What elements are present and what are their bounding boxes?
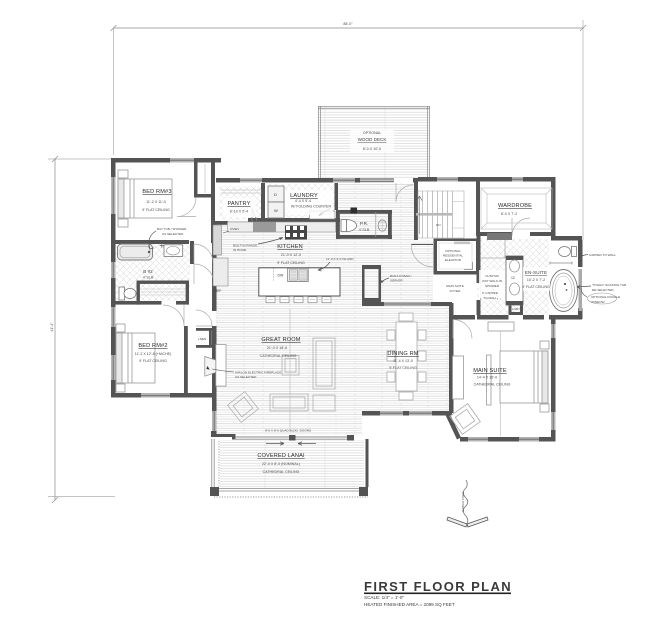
svg-text:WINDOW: WINDOW [591,300,605,304]
svg-text:4' SLB: 4' SLB [143,276,154,280]
svg-text:AS SELECTED: AS SELECTED [162,232,184,236]
svg-text:FIRST FLOOR PLAN: FIRST FLOOR PLAN [364,579,512,594]
svg-text:41'-4": 41'-4" [50,322,54,332]
svg-text:'TO&GO' SOAKING TUB: 'TO&GO' SOAKING TUB [592,283,626,287]
svg-text:12: 12 [511,276,515,280]
svg-text:CATHEDRAL CEILING: CATHEDRAL CEILING [263,470,300,474]
svg-text:22'-0 X 8'-0 (NOMINAL): 22'-0 X 8'-0 (NOMINAL) [262,462,300,466]
svg-text:DINING RM: DINING RM [387,351,418,357]
svg-text:14'-4 X 16'-0: 14'-4 X 16'-0 [477,376,497,380]
svg-text:WARDROBE: WARDROBE [498,203,532,209]
svg-text:BUILT-IN BAR /: BUILT-IN BAR / [390,274,412,278]
svg-text:TO WALL: TO WALL [483,296,497,300]
svg-text:8'-0 X 10'-0: 8'-0 X 10'-0 [363,147,381,151]
svg-text:BED RM#2: BED RM#2 [138,343,167,349]
svg-text:REF: REF [215,289,221,293]
svg-text:HEATED FINISHED AREA = 2099 SQ: HEATED FINISHED AREA = 2099 SQ FEET [364,602,455,607]
svg-text:COVERED LANAI: COVERED LANAI [257,453,305,459]
svg-text:GREAT ROOM: GREAT ROOM [261,337,300,343]
svg-text:DN: DN [436,223,440,227]
svg-text:DW: DW [278,274,284,278]
svg-text:8'-0 X 8'-0 QUAD SLDG. DOORS: 8'-0 X 8'-0 QUAD SLDG. DOORS [265,429,311,433]
svg-text:8'-0 X 7'-2: 8'-0 X 7'-2 [501,212,517,216]
svg-text:RE-SELECTED: RE-SELECTED [592,288,614,292]
svg-text:6'-10 X 5'-4: 6'-10 X 5'-4 [230,210,248,214]
svg-text:WATER SHED: WATER SHED [461,491,465,512]
svg-text:B #2: B #2 [143,269,153,274]
svg-text:IN HOOD: IN HOOD [233,248,247,252]
svg-text:WOOD DECK: WOOD DECK [358,137,388,142]
svg-text:9' FLAT CEILING: 9' FLAT CEILING [139,359,167,363]
svg-text:FOYER: FOYER [450,289,461,293]
svg-text:BUILT-IN RANGE: BUILT-IN RANGE [233,244,257,248]
svg-text:BAY TUB / SHOWER: BAY TUB / SHOWER [157,227,187,231]
svg-text:4' SLB: 4' SLB [359,228,370,232]
svg-text:9' FLAT CEILING: 9' FLAT CEILING [389,366,417,370]
svg-text:10'-2 X 7'-2: 10'-2 X 7'-2 [527,278,545,282]
svg-text:CATHEDRAL CEILING: CATHEDRAL CEILING [260,354,297,358]
svg-text:4'-4 X 5'-4: 4'-4 X 5'-4 [295,199,311,203]
svg-text:9' FLAT CEILING: 9' FLAT CEILING [277,261,305,265]
svg-text:OPTIONAL: OPTIONAL [445,249,461,253]
svg-text:SHOWER: SHOWER [485,284,500,288]
svg-text:ELEVATOR: ELEVATOR [445,258,462,262]
svg-text:CATHEDRAL CEILING: CATHEDRAL CEILING [474,383,511,387]
svg-text:11'-4 X 13'-0: 11'-4 X 13'-0 [393,359,413,363]
svg-text:4'X6' WALK-IN: 4'X6' WALK-IN [482,279,502,283]
svg-text:9' FLAT CEILING: 9' FLAT CEILING [522,285,550,289]
svg-text:W: W [274,208,278,213]
svg-text:9' FLAT CEILING: 9' FLAT CEILING [142,208,170,212]
svg-text:21'-0 X 18'-6: 21'-0 X 18'-6 [267,346,287,350]
svg-text:EN-SUITE: EN-SUITE [525,270,547,275]
svg-text:SERVER: SERVER [390,279,403,283]
svg-text:88'-0": 88'-0" [343,22,353,26]
svg-text:P.R.: P.R. [360,221,368,226]
svg-text:11'-2 X 12'-8 (+NICHE): 11'-2 X 12'-8 (+NICHE) [135,352,172,356]
svg-text:9' CAPPED: 9' CAPPED [482,291,499,295]
svg-text:OVEN: OVEN [230,227,239,231]
svg-text:OPTIONAL: OPTIONAL [363,131,381,135]
svg-text:AS SELECTED: AS SELECTED [235,375,257,379]
svg-text:KITCHEN: KITCHEN [277,244,303,250]
svg-text:SCALE: 1/4" = 1'-0": SCALE: 1/4" = 1'-0" [364,595,404,600]
svg-text:11'-2 X 11'-0: 11'-2 X 11'-0 [146,200,166,204]
svg-text:CUSTOM: CUSTOM [485,274,499,278]
svg-text:CAPPED TO WALL: CAPPED TO WALL [589,253,616,257]
svg-text:21'-0 X 12'-0: 21'-0 X 12'-0 [281,253,301,257]
svg-text:D: D [274,192,277,197]
svg-text:MAIN SUITE: MAIN SUITE [446,284,464,288]
svg-text:LNEN: LNEN [198,337,206,341]
svg-text:RESIDENTIAL: RESIDENTIAL [443,254,464,258]
svg-text:PANTRY: PANTRY [227,201,250,207]
svg-text:W/ FOLDING COUNTER: W/ FOLDING COUNTER [291,205,332,209]
svg-text:LNDY: LNDY [512,307,520,311]
svg-text:MAIN SUITE: MAIN SUITE [473,368,507,374]
svg-text:BED RM#3: BED RM#3 [142,189,171,195]
svg-text:11'-0 X 4'-0 ISLAND: 11'-0 X 4'-0 ISLAND [326,257,354,261]
svg-text:AVALON ELECTRIC FIREPLACE: AVALON ELECTRIC FIREPLACE [235,371,281,375]
